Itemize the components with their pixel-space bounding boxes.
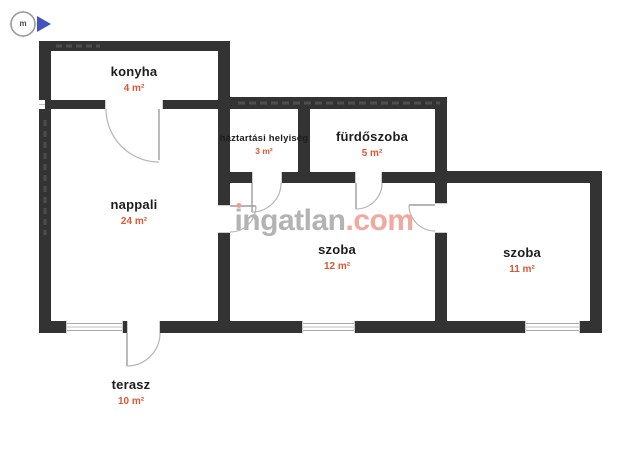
wall-mid-horizontal-3 (382, 172, 602, 183)
wall-nappali-divider-lower (218, 233, 230, 321)
wall-right (590, 171, 602, 333)
room-label-szoba-11: szoba 11 m² (503, 245, 541, 275)
room-name: szoba (318, 242, 356, 257)
wall-mid-horizontal-2 (282, 172, 355, 183)
watermark-name: ingatlan (234, 204, 345, 237)
room-area: 11 m² (503, 264, 541, 275)
compass-icon: m (6, 6, 58, 48)
north-arrow-icon (37, 16, 51, 32)
floorplan-canvas: m (0, 0, 644, 450)
wall-notch (39, 100, 45, 109)
room-label-szoba-12: szoba 12 m² (318, 242, 356, 272)
wall-bottom-5 (580, 321, 602, 333)
room-label-haztartasi-helyiseg: háztartási helyiség 3 m² (220, 133, 309, 156)
watermark-i-dot (236, 203, 241, 208)
room-label-terasz: terasz 10 m² (112, 377, 151, 407)
room-name: fürdőszoba (336, 129, 408, 144)
ingatlan-watermark: ingatlan.com (234, 204, 413, 238)
door-konyha (105, 100, 163, 162)
wall-bottom-2 (123, 321, 127, 333)
watermark-tld: .com (345, 204, 413, 237)
window-nappali (66, 321, 123, 333)
window-szoba-12 (302, 321, 355, 333)
room-area: 10 m² (112, 396, 151, 407)
compass-label: m (19, 19, 26, 28)
room-label-konyha: konyha 4 m² (111, 64, 158, 94)
room-label-nappali: nappali 24 m² (111, 197, 158, 227)
wall-kitchen-bottom-right (163, 100, 218, 109)
room-area: 24 m² (111, 216, 158, 227)
window-szoba-11 (525, 321, 580, 333)
door-terasz (127, 321, 160, 366)
room-name: konyha (111, 64, 158, 79)
room-area: 4 m² (111, 83, 158, 94)
room-name: szoba (503, 245, 541, 260)
room-area: 12 m² (318, 261, 356, 272)
wall-kitchen-bottom-left (51, 100, 105, 109)
room-area: 5 m² (336, 148, 408, 159)
room-label-furdoszoba: fürdőszoba 5 m² (336, 129, 408, 159)
room-name: terasz (112, 377, 151, 392)
wall-bottom-3 (160, 321, 302, 333)
wall-bottom-1 (39, 321, 66, 333)
wall-bottom-4 (355, 321, 525, 333)
room-area: 3 m² (220, 146, 309, 156)
door-szoba-szoba (409, 203, 447, 233)
wall-room-divider-upper (435, 97, 447, 203)
wall-mid-horizontal-1 (218, 172, 252, 183)
room-name: nappali (111, 197, 158, 212)
room-name: háztartási helyiség (220, 133, 309, 144)
wall-room-divider-lower (435, 233, 447, 321)
